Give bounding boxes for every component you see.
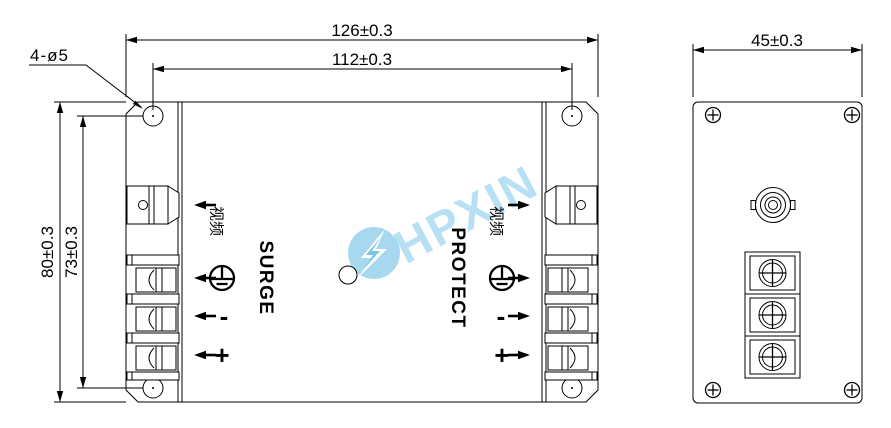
bnc-connector-left [127, 186, 179, 224]
svg-text:4-ø5: 4-ø5 [30, 46, 69, 65]
dim-hole-spacing-horizontal: 112±0.3 [153, 50, 572, 110]
protect-side-label: PROTECT [447, 227, 468, 328]
surge-side-label: SURGE [255, 240, 276, 315]
surge-protector-drawing: HPXIN [0, 0, 891, 428]
dimension-drawing-page: HPXIN [0, 0, 891, 428]
dim-side-depth: 45±0.3 [693, 31, 862, 97]
svg-text:73±0.3: 73±0.3 [62, 226, 81, 278]
terminal-block-end [745, 252, 800, 378]
front-view: HPXIN [126, 102, 598, 402]
plus-label-left: + [214, 340, 229, 370]
svg-text:45±0.3: 45±0.3 [751, 31, 803, 50]
svg-text:126±0.3: 126±0.3 [331, 21, 392, 40]
minus-label-right: - [497, 301, 506, 331]
side-view [693, 102, 862, 403]
bnc-connector-right [545, 186, 597, 224]
svg-text:80±0.3: 80±0.3 [38, 226, 57, 278]
minus-label-left: - [220, 301, 229, 331]
svg-text:112±0.3: 112±0.3 [332, 50, 392, 69]
plus-label-right: + [494, 340, 509, 370]
dim-overall-height: 80±0.3 [38, 102, 126, 402]
video-label-right: 视频 [488, 206, 505, 236]
video-label-left: 视频 [208, 206, 225, 236]
led-indicator-hole [339, 266, 357, 284]
